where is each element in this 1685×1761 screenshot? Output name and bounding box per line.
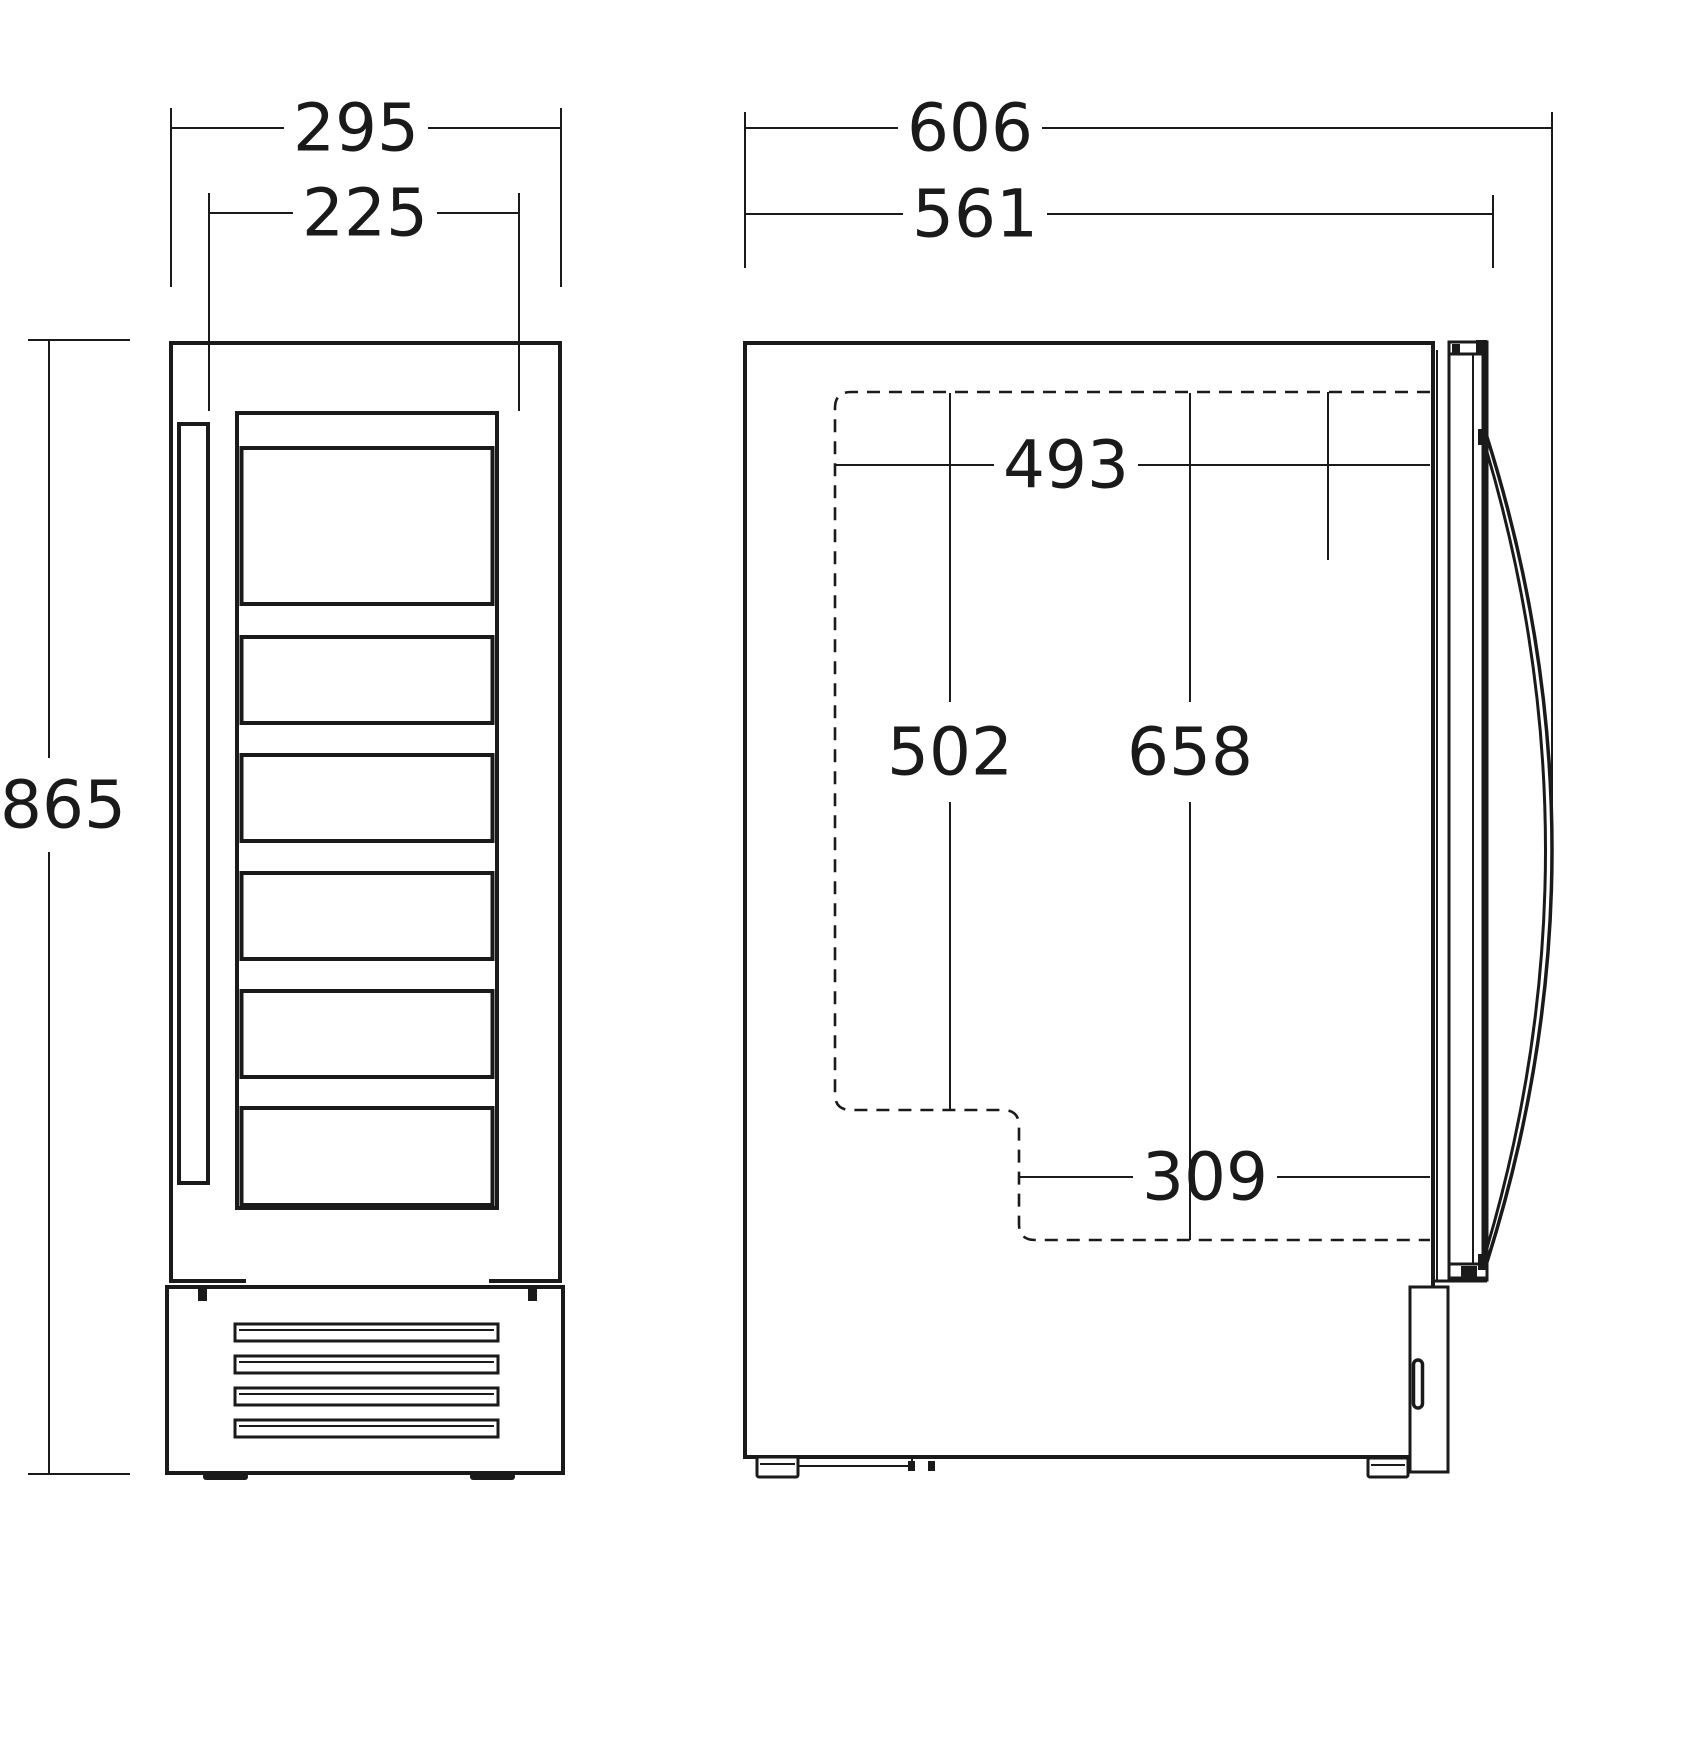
side-foot-rear (757, 1457, 798, 1477)
side-door (1433, 340, 1487, 1281)
base-tab-left (198, 1288, 207, 1301)
appliance-dimension-drawing: 295 225 865 606 (0, 0, 1685, 1761)
door-top-edge-block (1476, 340, 1487, 355)
dimension-drawing-canvas: 295 225 865 606 (0, 0, 1685, 1761)
side-foot-front (1368, 1458, 1408, 1477)
dim-side-body-depth-label: 561 (912, 176, 1038, 253)
base-recess-strip (246, 1279, 489, 1284)
handle-inner-curve (1487, 452, 1546, 1248)
front-base-plinth (167, 1287, 563, 1473)
door-bottom-seal (1461, 1266, 1477, 1277)
dim-interior-lower-width-label: 309 (1142, 1139, 1268, 1216)
dim-front-door-width-label: 225 (302, 175, 428, 252)
handle-outer-curve (1487, 437, 1552, 1262)
front-foot-left (203, 1473, 248, 1480)
dim-side-depth-label: 606 (907, 90, 1033, 167)
dim-front-height-label: 865 (0, 767, 126, 844)
shelf-compartment (242, 637, 493, 723)
handle-mount-top (1478, 429, 1488, 445)
vent-slat (235, 1388, 498, 1405)
shelf-compartment (242, 991, 493, 1077)
side-body-outline (745, 343, 1433, 1457)
side-view (745, 340, 1552, 1477)
dim-interior-width-label: 493 (1003, 427, 1129, 504)
door-slab (1449, 350, 1487, 1280)
vent-slat (235, 1324, 498, 1341)
door-top-seal (1452, 344, 1460, 354)
side-door-handle (1478, 429, 1552, 1270)
front-foot-right (470, 1473, 515, 1480)
shelf-compartment (242, 873, 493, 959)
dim-side-body-depth: 561 (745, 176, 1493, 269)
dim-interior-front-height-label: 502 (887, 714, 1013, 791)
dim-interior-rear-height-label: 658 (1127, 714, 1253, 791)
shelf-compartment (242, 755, 493, 841)
underside-tab (908, 1461, 915, 1471)
underside-tab (928, 1461, 935, 1471)
shelf-compartment (242, 1108, 493, 1205)
base-tab-right (528, 1288, 537, 1301)
front-door-handle (179, 424, 208, 1183)
handle-mount-bottom (1478, 1254, 1488, 1270)
bracket-slot (1414, 1360, 1423, 1408)
front-view (167, 343, 563, 1480)
vent-slat (235, 1356, 498, 1373)
shelf-compartment (242, 448, 493, 604)
vent-slat (235, 1420, 498, 1437)
underside-strip (798, 1458, 912, 1466)
dim-front-height: 865 (0, 340, 130, 1474)
dim-front-width-label: 295 (293, 90, 419, 167)
